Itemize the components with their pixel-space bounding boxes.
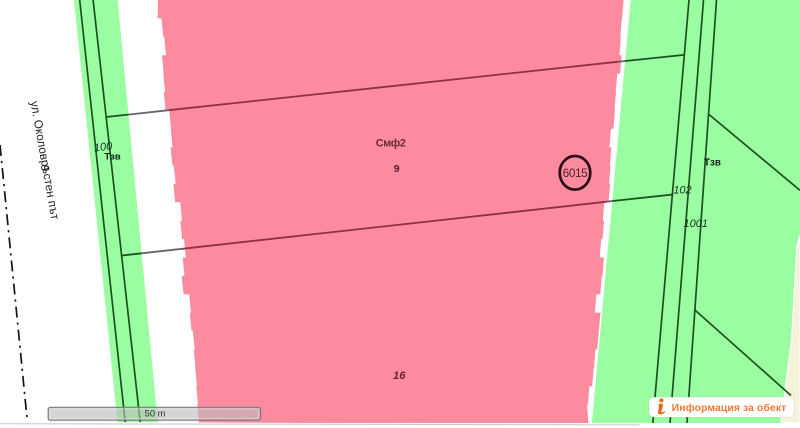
svg-text:6015: 6015 [563, 166, 588, 180]
svg-text:Смф2: Смф2 [376, 137, 406, 149]
svg-text:Тзв: Тзв [704, 158, 721, 169]
svg-text:Тзв: Тзв [104, 151, 121, 162]
svg-text:9: 9 [394, 163, 400, 175]
svg-text:102: 102 [673, 185, 691, 197]
svg-text:Информация за обект: Информация за обект [672, 402, 787, 414]
svg-text:50 m: 50 m [145, 409, 166, 419]
svg-text:16: 16 [393, 370, 406, 382]
svg-text:1001: 1001 [683, 218, 707, 230]
